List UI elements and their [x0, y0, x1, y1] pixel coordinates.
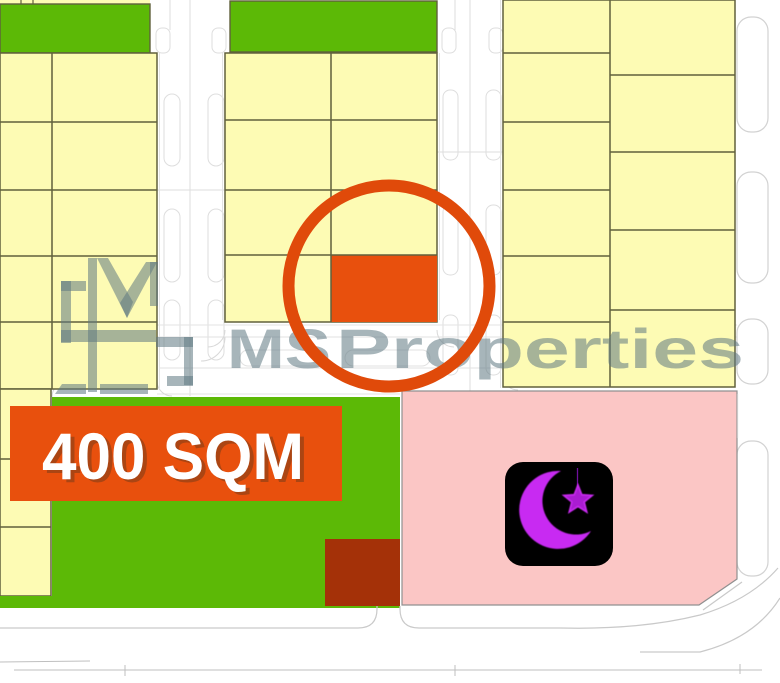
svg-text:Properties: Properties — [336, 317, 744, 380]
svg-text:400 SQM: 400 SQM — [42, 419, 304, 493]
